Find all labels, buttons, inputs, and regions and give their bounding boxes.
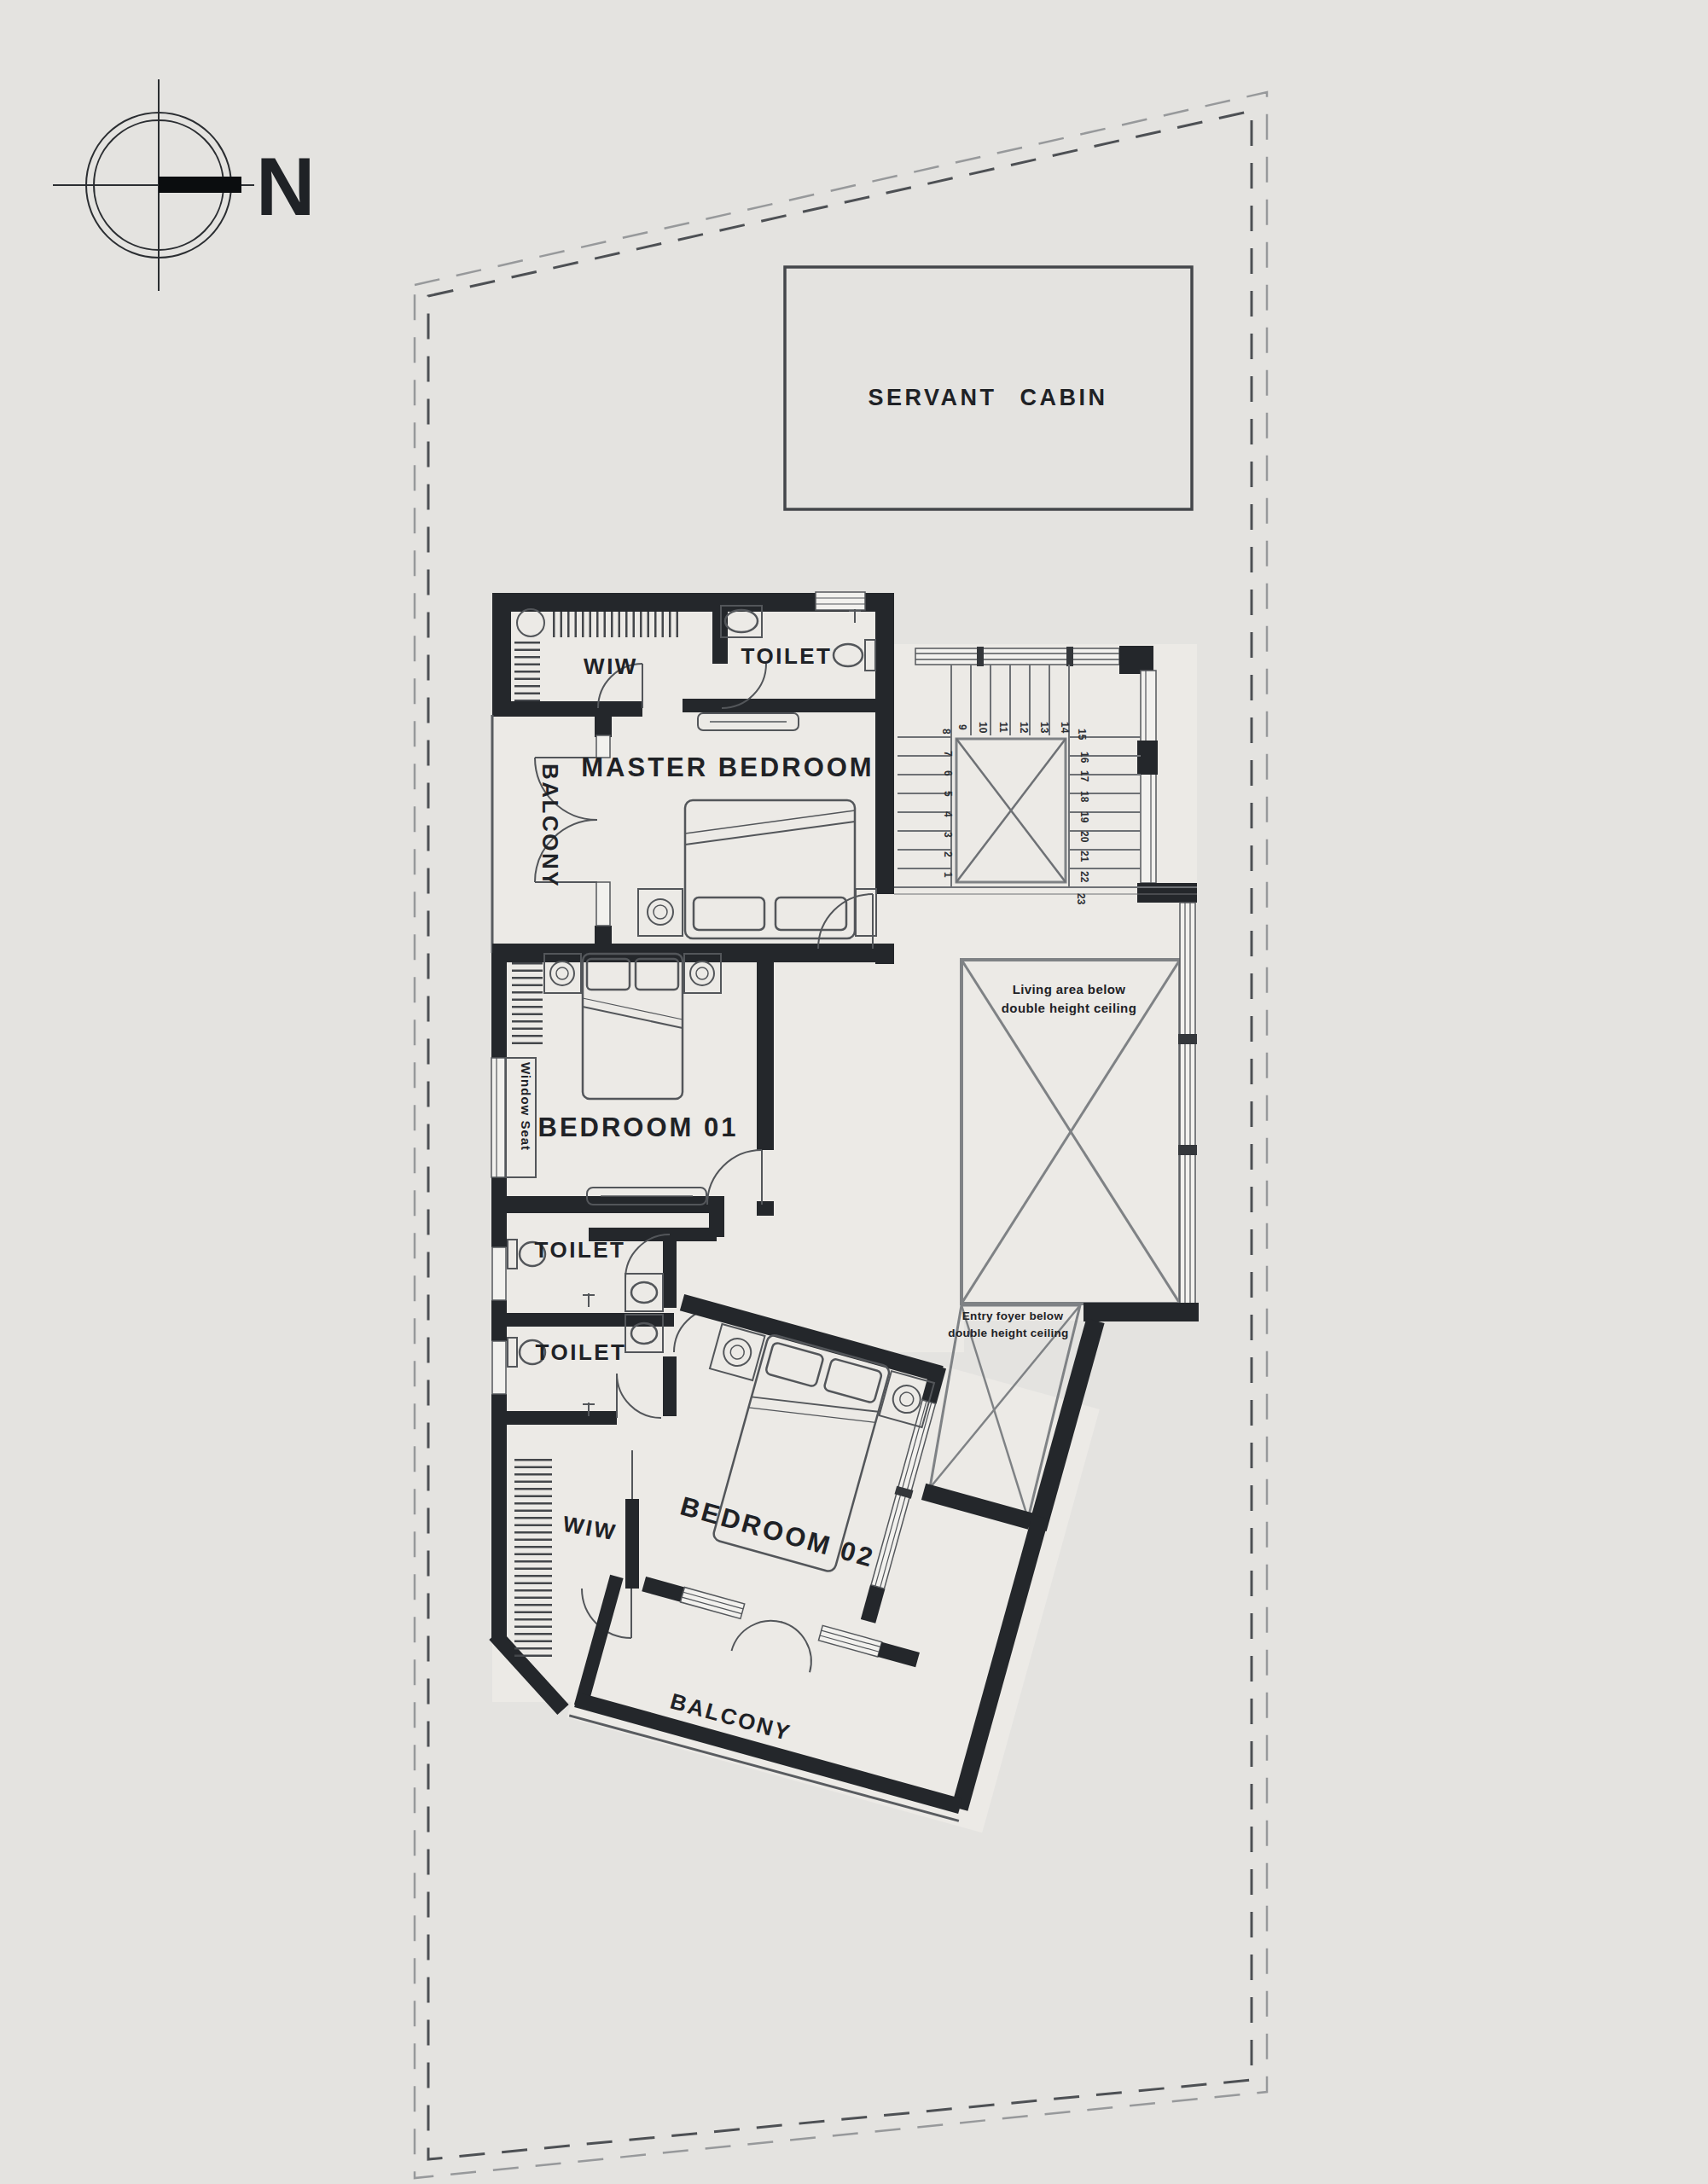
svg-text:21: 21 xyxy=(1078,851,1090,863)
servant-cabin: SERVANT CABIN xyxy=(785,267,1192,509)
svg-text:7: 7 xyxy=(942,751,954,757)
living-void-note-line1: Living area below xyxy=(1013,982,1126,996)
bedroom01-label: BEDROOM 01 xyxy=(538,1112,739,1142)
svg-text:6: 6 xyxy=(942,770,954,776)
toilet-b-label: TOILET xyxy=(536,1339,627,1365)
svg-text:1: 1 xyxy=(942,872,954,878)
svg-text:19: 19 xyxy=(1078,811,1090,823)
svg-text:16: 16 xyxy=(1078,752,1090,764)
svg-text:5: 5 xyxy=(942,791,954,797)
floor-plan-drawing: N SERVANT CABIN xyxy=(0,0,1708,2184)
svg-text:2: 2 xyxy=(942,851,954,857)
window-seat-label: Window Seat xyxy=(519,1062,533,1151)
svg-text:12: 12 xyxy=(1018,722,1030,734)
master-toilet-label: TOILET xyxy=(741,643,833,669)
servant-cabin-label: SERVANT CABIN xyxy=(868,385,1107,410)
svg-text:15: 15 xyxy=(1076,729,1088,741)
foyer-void-note-line2: double height ceiling xyxy=(948,1327,1068,1339)
svg-text:9: 9 xyxy=(956,724,968,730)
north-pointer-icon xyxy=(159,177,241,193)
svg-text:17: 17 xyxy=(1078,770,1090,782)
living-void-note-line2: double height ceiling xyxy=(1002,1001,1136,1015)
svg-text:8: 8 xyxy=(940,729,952,735)
svg-text:11: 11 xyxy=(997,722,1009,733)
foyer-void-note-line1: Entry foyer below xyxy=(962,1310,1064,1322)
svg-text:14: 14 xyxy=(1059,722,1071,734)
svg-text:22: 22 xyxy=(1078,871,1090,883)
floor-plan-page: N SERVANT CABIN xyxy=(0,0,1708,2184)
master-wiw-label: WIW xyxy=(584,653,638,679)
master-bedroom-label: MASTER BEDROOM xyxy=(581,752,874,782)
master-balcony-label: BALCONY xyxy=(537,764,563,888)
north-compass: N xyxy=(53,79,317,291)
svg-text:20: 20 xyxy=(1078,831,1090,843)
svg-text:3: 3 xyxy=(942,832,954,838)
svg-text:23: 23 xyxy=(1075,893,1087,905)
toilet-a-label: TOILET xyxy=(535,1237,626,1263)
svg-text:10: 10 xyxy=(977,722,989,734)
svg-text:4: 4 xyxy=(942,811,954,817)
svg-text:18: 18 xyxy=(1078,791,1090,803)
north-label: N xyxy=(256,141,317,232)
svg-text:13: 13 xyxy=(1038,722,1050,734)
